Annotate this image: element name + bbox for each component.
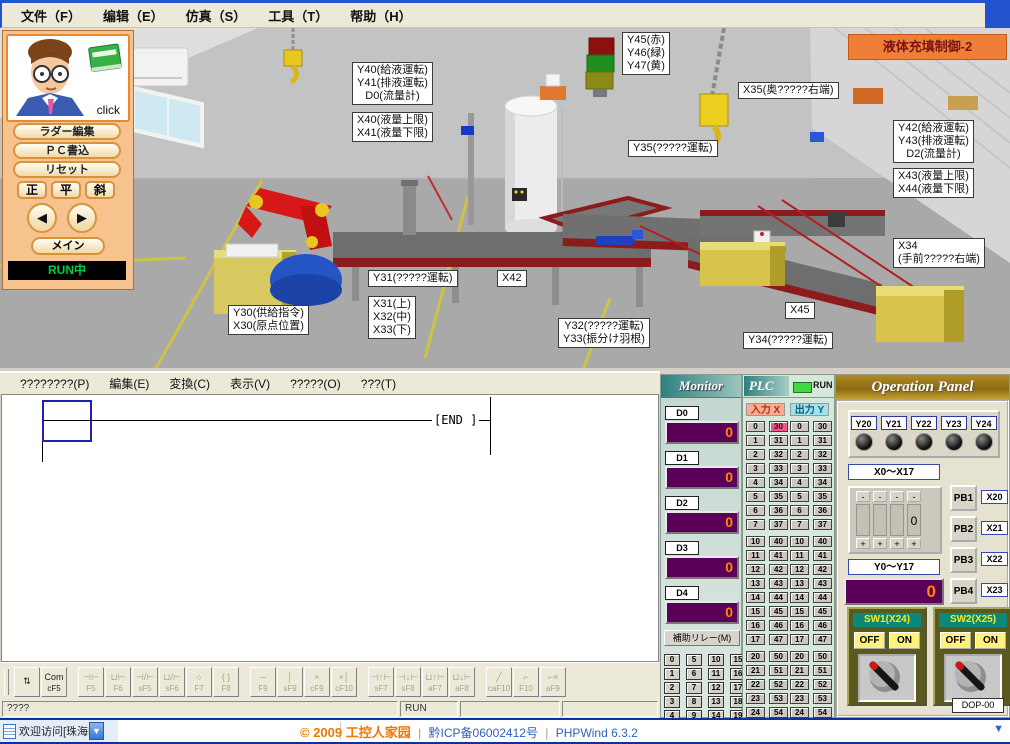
knob-box-1[interactable] <box>858 654 916 702</box>
prev-arrow-button[interactable]: ◀ <box>27 203 57 233</box>
y-indicator-5[interactable]: 5 <box>790 491 809 502</box>
end-instruction: [END ] <box>432 413 479 427</box>
ladder-menu-item-1[interactable]: 編集(E) <box>99 373 159 394</box>
register-display-D4: 0 <box>665 601 739 624</box>
ladder-menubar: ????????(P)編集(E)変換(C)表示(V)?????(O)???(T) <box>0 371 660 394</box>
y-indicator-21[interactable]: 21 <box>790 665 809 676</box>
y-indicator-37[interactable]: 37 <box>813 519 832 530</box>
register-label-D3: D3 <box>665 541 699 555</box>
x-indicator-4[interactable]: 4 <box>746 477 765 488</box>
scene-label-y40: Y40(給液運転)Y41(排液運転)D0(流量計) <box>352 62 433 105</box>
scene-label-y32: Y32(?????運転)Y33(振分け羽根) <box>558 318 650 348</box>
lamp-Y21 <box>885 433 903 451</box>
monitor-body: D40D30D20D10D00 補助リレー(M) 051015161116271… <box>661 397 741 717</box>
aux-relay-button[interactable]: 補助リレー(M) <box>664 630 740 646</box>
aux-relay-7[interactable]: 7 <box>686 682 702 694</box>
register-label-D1: D1 <box>665 451 699 465</box>
webpage-icon <box>3 724 16 739</box>
digit-stepper: -+-+-+-0+ <box>848 486 942 554</box>
ladder-menu-item-5[interactable]: ???(T) <box>351 375 406 393</box>
y-indicator-44[interactable]: 44 <box>813 592 832 603</box>
x-indicator-13[interactable]: 13 <box>746 578 765 589</box>
yellow-bin-mid <box>700 242 785 286</box>
pushbutton-address-X22: X22 <box>981 552 1008 566</box>
plc-run-indicator <box>793 382 812 393</box>
y-indicator-10[interactable]: 10 <box>790 536 809 547</box>
plc-body: 入力 X 出力 Y 012345673031323334353637101112… <box>743 397 834 717</box>
ladder-statusbar: ???? RUN <box>0 700 660 718</box>
switch-label-2: SW2(X25) <box>939 613 1007 627</box>
engine-link[interactable]: PHPWind 6.3.2 <box>556 726 638 740</box>
ladder-tool-F10: ⌐F10 <box>513 667 539 697</box>
y-indicator-1[interactable]: 1 <box>790 435 809 446</box>
app-window: 文件（F）编辑（E）仿真（S）工具（T）帮助（H） <box>0 0 1010 744</box>
pushbutton-PB4[interactable]: PB4 <box>950 578 977 604</box>
y-indicator-40[interactable]: 40 <box>813 536 832 547</box>
aux-relay-13[interactable]: 13 <box>708 696 724 708</box>
x-indicator-22[interactable]: 22 <box>746 679 765 690</box>
digit-plus-1[interactable]: + <box>873 538 887 549</box>
x-indicator-20[interactable]: 20 <box>746 651 765 662</box>
x-indicator-47[interactable]: 47 <box>769 634 788 645</box>
footer-marquee[interactable]: 欢迎访问[珠海R ▼ <box>0 720 118 742</box>
ladder-menu-item-3[interactable]: 表示(V) <box>220 373 280 394</box>
ladder-tool-aF9: ⌐×aF9 <box>540 667 566 697</box>
lamp-label-Y21: Y21 <box>881 416 907 430</box>
y-indicator-14[interactable]: 14 <box>790 592 809 603</box>
ladder-tool-sF5: ⊣/⊢sF5 <box>132 667 158 697</box>
digit-minus-0[interactable]: - <box>856 491 870 502</box>
y-indicator-47[interactable]: 47 <box>813 634 832 645</box>
guide-panel: click ラダー編集ＰＣ書込リセット 正平斜 ◀ ▶ メイン RUN中 <box>2 30 134 290</box>
ladder-tool-aF7: ⊔↑⊢aF7 <box>422 667 448 697</box>
y-indicator-30[interactable]: 30 <box>813 421 832 432</box>
output-y-grid: 0123456730313233343536371011121314151617… <box>790 421 832 744</box>
y-indicator-46[interactable]: 46 <box>813 620 832 631</box>
ladder-edit-button[interactable]: ラダー編集 <box>13 123 121 140</box>
ladder-menu-item-0[interactable]: ????????(P) <box>10 375 99 393</box>
x-indicator-37[interactable]: 37 <box>769 519 788 530</box>
x-indicator-24[interactable]: 24 <box>746 707 765 718</box>
switch-1-off-button[interactable]: OFF <box>854 632 885 649</box>
y-indicator-17[interactable]: 17 <box>790 634 809 645</box>
lamp-group: Y20Y21Y22Y23Y24 <box>848 410 1000 458</box>
y-indicator-50[interactable]: 50 <box>813 651 832 662</box>
ladder-tool-sF9: │sF9 <box>277 667 303 697</box>
pushbutton-address-X21: X21 <box>981 521 1008 535</box>
scene-label-y45: Y45(赤)Y46(緑)Y47(黄) <box>622 32 670 75</box>
next-arrow-button[interactable]: ▶ <box>67 203 97 233</box>
aux-relay-5[interactable]: 5 <box>686 654 702 666</box>
scene-label-y31: Y31(?????運転) <box>368 270 458 287</box>
x-indicator-51[interactable]: 51 <box>769 665 788 676</box>
window-corner-strip <box>985 0 1010 28</box>
monitor-panel: Monitor D40D30D20D10D00 補助リレー(M) 0510151… <box>660 374 742 718</box>
separator: | <box>541 726 552 740</box>
ladder-menu-item-4[interactable]: ?????(O) <box>280 375 351 393</box>
ladder-status-cell <box>460 701 560 717</box>
ladder-cursor <box>42 400 92 442</box>
ladder-tool-cF9: ×cF9 <box>304 667 330 697</box>
digit-display-1 <box>873 504 887 536</box>
y-indicator-51[interactable]: 51 <box>813 665 832 676</box>
scene-label-y35: Y35(?????運転) <box>628 140 718 157</box>
ladder-toolbar: ⇅ComcF5⊣⊢F5⊔⊢F6⊣/⊢sF5⊔/⊢sF6○F7{ }F8─F9│s… <box>0 662 660 700</box>
footer-copyright: © 2009 工控人家园 | 黔ICP备06002412号 | PHPWind … <box>300 722 638 741</box>
rotary-knob[interactable] <box>860 656 910 696</box>
register-display-D3: 0 <box>665 556 739 579</box>
y-indicator-53[interactable]: 53 <box>813 693 832 704</box>
reset-button[interactable]: リセット <box>13 161 121 178</box>
output-y-header: 出力 Y <box>790 403 829 416</box>
guide-avatar[interactable]: click <box>6 34 130 122</box>
scene-label-x34: X34(手前?????右端) <box>893 238 985 268</box>
x-indicator-1[interactable]: 1 <box>746 435 765 446</box>
plc-title: PLC <box>744 376 789 396</box>
lamp-label-Y20: Y20 <box>851 416 877 430</box>
ladder-tool-cF10: ×│cF10 <box>331 667 357 697</box>
register-label-D2: D2 <box>665 496 699 510</box>
ladder-tool-sF7: ⊣↑⊢sF7 <box>368 667 394 697</box>
ladder-tool-com[interactable]: ComcF5 <box>41 667 67 697</box>
x-indicator-45[interactable]: 45 <box>769 606 788 617</box>
digit-minus-1[interactable]: - <box>873 491 887 502</box>
ladder-status-message: ???? <box>2 701 398 717</box>
x-indicator-11[interactable]: 11 <box>746 550 765 561</box>
lamp-Y20 <box>855 433 873 451</box>
x-indicator-2[interactable]: 2 <box>746 449 765 460</box>
y-range-label: Y0～Y17 <box>848 559 940 575</box>
y-indicator-23[interactable]: 23 <box>790 693 809 704</box>
y-indicator-43[interactable]: 43 <box>813 578 832 589</box>
pushbutton-PB3[interactable]: PB3 <box>950 547 977 573</box>
scene-title-banner: 液体充填制御-2 <box>848 34 1007 60</box>
ladder-rung <box>44 420 490 421</box>
x-indicator-54[interactable]: 54 <box>769 707 788 718</box>
menubar: 文件（F）编辑（E）仿真（S）工具（T）帮助（H） <box>0 0 1010 28</box>
ladder-tool-F5: ⊣⊢F5 <box>78 667 104 697</box>
footer-bar: 欢迎访问[珠海R ▼ © 2009 工控人家园 | 黔ICP备06002412号… <box>0 718 1010 744</box>
lamp-Y24 <box>975 433 993 451</box>
pushbutton-address-column: X20X21X22X23 <box>981 490 1008 597</box>
digit-display-3: 0 <box>907 504 921 536</box>
digit-minus-3[interactable]: - <box>907 491 921 502</box>
x-indicator-15[interactable]: 15 <box>746 606 765 617</box>
menu-item-0[interactable]: 文件（F） <box>10 3 92 28</box>
ac-unit <box>128 48 188 86</box>
switch-group-1: SW1(X24)OFFON <box>847 607 927 706</box>
scene-label-y34: Y34(?????運転) <box>743 332 833 349</box>
lamp-Y23 <box>945 433 963 451</box>
knob-box-2[interactable] <box>944 654 1002 702</box>
y-indicator-22[interactable]: 22 <box>790 679 809 690</box>
aux-relay-11[interactable]: 11 <box>708 668 724 680</box>
ladder-status-run: RUN <box>400 701 458 717</box>
footer-chevron-icon[interactable]: ▼ <box>993 723 1004 735</box>
aux-relay-8[interactable]: 8 <box>686 696 702 708</box>
y-indicator-52[interactable]: 52 <box>813 679 832 690</box>
book-icon <box>88 44 121 72</box>
scene-label-x35: X35(奥?????右端) <box>738 82 839 99</box>
register-label-D0: D0 <box>665 406 699 420</box>
pose-button-1[interactable]: 正 <box>17 181 47 199</box>
x-indicator-21[interactable]: 21 <box>746 665 765 676</box>
stack-light <box>586 38 614 97</box>
ladder-tool-sF8: ⊣↓⊢sF8 <box>395 667 421 697</box>
aux-relay-10[interactable]: 10 <box>708 654 724 666</box>
plc-panel: PLC RUN 入力 X 出力 Y 0123456730313233343536… <box>742 374 835 718</box>
y-indicator-6[interactable]: 6 <box>790 505 809 516</box>
menu-item-3[interactable]: 工具（T） <box>257 3 339 28</box>
click-label: click <box>97 103 120 117</box>
x-indicator-31[interactable]: 31 <box>769 435 788 446</box>
y-indicator-7[interactable]: 7 <box>790 519 809 530</box>
aux-relay-2[interactable]: 2 <box>664 682 680 694</box>
copyright-text: © 2009 工控人家园 <box>300 725 411 740</box>
simulation-view: 液体充填制御-2 Y40(給液運転)Y41(排液運転)D0(流量計)X40(液量… <box>0 28 1010 370</box>
switch-group-2: SW2(X25)OFFON <box>933 607 1010 706</box>
digit-plus-0[interactable]: + <box>856 538 870 549</box>
ladder-right-bus <box>490 397 491 455</box>
factory-scene <box>0 28 1010 370</box>
x-indicator-34[interactable]: 34 <box>769 477 788 488</box>
y-indicator-45[interactable]: 45 <box>813 606 832 617</box>
y-indicator-4[interactable]: 4 <box>790 477 809 488</box>
scene-label-x40: X40(液量上限)X41(液量下限) <box>352 112 433 142</box>
x-indicator-53[interactable]: 53 <box>769 693 788 704</box>
x-indicator-43[interactable]: 43 <box>769 578 788 589</box>
footer-marquee-text: 欢迎访问[珠海R <box>19 723 89 739</box>
x-indicator-33[interactable]: 33 <box>769 463 788 474</box>
y-indicator-13[interactable]: 13 <box>790 578 809 589</box>
switch-2-on-button[interactable]: ON <box>975 632 1006 649</box>
digit-plus-3[interactable]: + <box>907 538 921 549</box>
y-indicator-41[interactable]: 41 <box>813 550 832 561</box>
yellow-bin-right <box>876 286 964 342</box>
x-indicator-36[interactable]: 36 <box>769 505 788 516</box>
ladder-tool-sF6: ⊔/⊢sF6 <box>159 667 185 697</box>
ladder-tool-caF10: ╱caF10 <box>486 667 512 697</box>
ladder-canvas[interactable]: [END ] <box>1 394 659 662</box>
plc-run-label: RUN <box>813 380 833 390</box>
scene-label-x45: X45 <box>785 302 815 319</box>
icp-link[interactable]: 黔ICP备06002412号 <box>429 726 538 740</box>
x-indicator-30[interactable]: 30 <box>769 421 788 432</box>
y-indicator-36[interactable]: 36 <box>813 505 832 516</box>
lamp-label-Y22: Y22 <box>911 416 937 430</box>
x-indicator-10[interactable]: 10 <box>746 536 765 547</box>
pushbutton-address-X20: X20 <box>981 490 1008 504</box>
scene-label-y30: Y30(供給指令)X30(原点位置) <box>228 305 309 335</box>
ladder-tool-F6: ⊔⊢F6 <box>105 667 131 697</box>
y-indicator-3[interactable]: 3 <box>790 463 809 474</box>
y-indicator-33[interactable]: 33 <box>813 463 832 474</box>
aux-relay-0[interactable]: 0 <box>664 654 680 666</box>
input-x-header: 入力 X <box>746 403 785 416</box>
aux-relay-3[interactable]: 3 <box>664 696 680 708</box>
register-display-D2: 0 <box>665 511 739 534</box>
pose-button-3[interactable]: 斜 <box>85 181 115 199</box>
ladder-tool-mode[interactable]: ⇅ <box>14 667 40 697</box>
switch-label-1: SW1(X24) <box>853 613 921 627</box>
x-indicator-50[interactable]: 50 <box>769 651 788 662</box>
scene-label-x42: X42 <box>497 270 527 287</box>
scene-label-x43: X43(液量上限)X44(液量下限) <box>893 168 974 198</box>
aux-relay-1[interactable]: 1 <box>664 668 680 680</box>
scene-label-x31: X31(上)X32(中)X33(下) <box>368 296 416 339</box>
switch-1-on-button[interactable]: ON <box>889 632 920 649</box>
x-indicator-17[interactable]: 17 <box>746 634 765 645</box>
x-indicator-14[interactable]: 14 <box>746 592 765 603</box>
y-indicator-35[interactable]: 35 <box>813 491 832 502</box>
x-indicator-12[interactable]: 12 <box>746 564 765 575</box>
plc-header: PLC RUN <box>743 375 834 398</box>
aux-relay-grid: 051015161116271217381318491419 <box>664 654 746 722</box>
x-indicator-46[interactable]: 46 <box>769 620 788 631</box>
register-display-D0: 0 <box>665 421 739 444</box>
x-range-label: X0～X17 <box>848 464 940 480</box>
lamp-Y22 <box>915 433 933 451</box>
y-indicator-34[interactable]: 34 <box>813 477 832 488</box>
y-indicator-0[interactable]: 0 <box>790 421 809 432</box>
x-indicator-6[interactable]: 6 <box>746 505 765 516</box>
marquee-dropdown-button[interactable]: ▼ <box>89 722 104 740</box>
y-indicator-2[interactable]: 2 <box>790 449 809 460</box>
register-label-D4: D4 <box>665 586 699 600</box>
y-indicator-12[interactable]: 12 <box>790 564 809 575</box>
x-indicator-23[interactable]: 23 <box>746 693 765 704</box>
pushbutton-PB1[interactable]: PB1 <box>950 485 977 511</box>
input-x-grid: 0123456730313233343536371011121314151617… <box>746 421 788 744</box>
pushbutton-column: PB1PB2PB3PB4 <box>950 485 977 604</box>
operation-panel: Operation Panel Y20Y21Y22Y23Y24 X0～X17 -… <box>835 374 1010 718</box>
pushbutton-address-X23: X23 <box>981 583 1008 597</box>
monitor-title: Monitor <box>661 375 741 398</box>
x-indicator-5[interactable]: 5 <box>746 491 765 502</box>
menu-item-2[interactable]: 仿真（S） <box>175 3 258 28</box>
x-indicator-32[interactable]: 32 <box>769 449 788 460</box>
y-indicator-32[interactable]: 32 <box>813 449 832 460</box>
aux-relay-12[interactable]: 12 <box>708 682 724 694</box>
x-indicator-35[interactable]: 35 <box>769 491 788 502</box>
x-indicator-52[interactable]: 52 <box>769 679 788 690</box>
lamp-label-Y23: Y23 <box>941 416 967 430</box>
digit-display-2 <box>890 504 904 536</box>
scene-label-y42: Y42(給液運転)Y43(排液運転)D2(流量計) <box>893 120 974 163</box>
ladder-tool-F7: ○F7 <box>186 667 212 697</box>
lamp-label-Y24: Y24 <box>971 416 997 430</box>
y-indicator-15[interactable]: 15 <box>790 606 809 617</box>
rotary-knob[interactable] <box>946 656 996 696</box>
separator: | <box>414 726 425 740</box>
y-value-display: 0 <box>844 578 944 605</box>
x-indicator-7[interactable]: 7 <box>746 519 765 530</box>
y-indicator-20[interactable]: 20 <box>790 651 809 662</box>
switch-2-off-button[interactable]: OFF <box>940 632 971 649</box>
y-indicator-54[interactable]: 54 <box>813 707 832 718</box>
digit-plus-2[interactable]: + <box>890 538 904 549</box>
ladder-tool-F9: ─F9 <box>250 667 276 697</box>
toolbar-grip[interactable] <box>4 669 9 695</box>
y-indicator-42[interactable]: 42 <box>813 564 832 575</box>
x-indicator-16[interactable]: 16 <box>746 620 765 631</box>
y-indicator-24[interactable]: 24 <box>790 707 809 718</box>
x-indicator-44[interactable]: 44 <box>769 592 788 603</box>
operation-panel-body: Y20Y21Y22Y23Y24 X0～X17 -+-+-+-0+ PB1PB2P… <box>836 400 1009 717</box>
x-indicator-0[interactable]: 0 <box>746 421 765 432</box>
register-display-D1: 0 <box>665 466 739 489</box>
run-status-bar: RUN中 <box>8 261 126 280</box>
operation-panel-title: Operation Panel <box>836 375 1009 400</box>
silo-tank <box>505 74 566 237</box>
ladder-tool-F8: { }F8 <box>213 667 239 697</box>
x-indicator-40[interactable]: 40 <box>769 536 788 547</box>
menu-item-1[interactable]: 编辑（E） <box>92 3 175 28</box>
x-indicator-41[interactable]: 41 <box>769 550 788 561</box>
menu-item-4[interactable]: 帮助（H） <box>339 3 422 28</box>
pose-button-2[interactable]: 平 <box>51 181 81 199</box>
digit-minus-2[interactable]: - <box>890 491 904 502</box>
y-indicator-11[interactable]: 11 <box>790 550 809 561</box>
pushbutton-PB2[interactable]: PB2 <box>950 516 977 542</box>
x-indicator-42[interactable]: 42 <box>769 564 788 575</box>
y-indicator-31[interactable]: 31 <box>813 435 832 446</box>
main-button[interactable]: メイン <box>31 237 105 255</box>
pc-write-button[interactable]: ＰＣ書込 <box>13 142 121 159</box>
x-indicator-3[interactable]: 3 <box>746 463 765 474</box>
y-indicator-16[interactable]: 16 <box>790 620 809 631</box>
digit-display-0 <box>856 504 870 536</box>
aux-relay-6[interactable]: 6 <box>686 668 702 680</box>
panel-model-label: DOP-00 <box>952 698 1004 713</box>
ladder-tool-aF8: ⊔↓⊢aF8 <box>449 667 475 697</box>
ladder-menu-item-2[interactable]: 変換(C) <box>159 373 220 394</box>
ladder-status-cell <box>562 701 658 717</box>
